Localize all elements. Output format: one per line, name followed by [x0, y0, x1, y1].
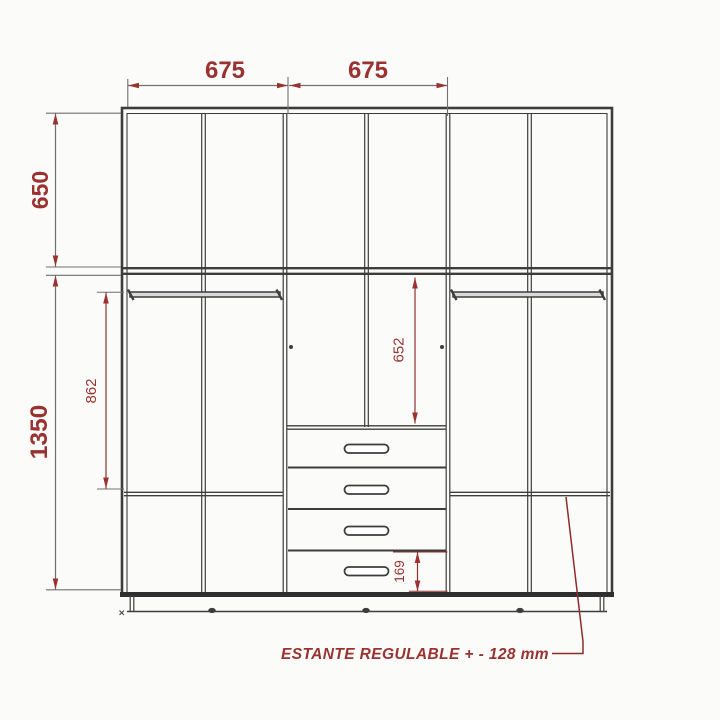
base-glide: [209, 609, 215, 613]
dimension-label: 1350: [26, 405, 53, 460]
leader-line: [552, 497, 583, 654]
dimension-upper-height: 650: [27, 113, 121, 267]
shelf-annotation: ESTANTE REGULABLE + - 128 mm: [281, 497, 583, 663]
arrowhead: [128, 83, 139, 89]
rail-bar: [130, 292, 280, 297]
dimension-width-left: 675: [128, 57, 288, 114]
arrowhead: [415, 581, 421, 592]
dimension-label: 675: [205, 57, 245, 84]
plinth-base: [120, 595, 608, 615]
dimension-hanging-height: 862: [83, 292, 124, 489]
arrowhead: [103, 478, 109, 489]
drawer-stack: [287, 426, 446, 576]
adjustable-shelf-left: [124, 492, 283, 495]
dimension-label: 675: [348, 57, 388, 84]
arrowhead: [290, 83, 301, 89]
vertical-dividers: [202, 113, 532, 592]
dimension-center-height: 652: [391, 278, 418, 424]
arrowhead: [412, 278, 418, 289]
arrowhead: [415, 552, 421, 563]
drawing-svg: 675 675 650 1350 862: [0, 0, 720, 720]
shelf-annotation-label: ESTANTE REGULABLE + - 128 mm: [281, 646, 549, 663]
arrowhead: [53, 276, 59, 287]
arrowhead: [53, 114, 59, 125]
dimension-label: 650: [27, 171, 53, 209]
carcass-outline: [122, 108, 612, 594]
drawer-handle: [345, 567, 389, 576]
arrowhead: [53, 579, 59, 590]
arrowhead: [103, 293, 109, 304]
carcass-inner-line: [127, 114, 607, 593]
dimension-lower-height: 1350: [26, 275, 121, 590]
arrowhead: [437, 83, 448, 89]
base-glide: [517, 609, 523, 613]
shelf-pin-left: [289, 345, 293, 349]
wardrobe-carcass: [120, 108, 614, 595]
rail-bar: [453, 292, 603, 297]
adjustable-shelf-right: [450, 492, 610, 495]
wardrobe-technical-drawing: 675 675 650 1350 862: [0, 0, 720, 720]
shelf-pin-right: [440, 345, 444, 349]
dimension-drawer-height: 169: [392, 552, 448, 592]
arrowhead: [53, 256, 59, 267]
drawer-handle: [345, 445, 389, 454]
base-glide: [363, 609, 369, 613]
drawer-handle: [345, 527, 389, 536]
arrowhead: [412, 413, 418, 424]
drawer-handle: [345, 486, 389, 495]
arrowhead: [277, 83, 288, 89]
dimension-label: 169: [392, 560, 407, 583]
dimension-label: 862: [83, 378, 100, 403]
dimension-label: 652: [391, 337, 408, 362]
